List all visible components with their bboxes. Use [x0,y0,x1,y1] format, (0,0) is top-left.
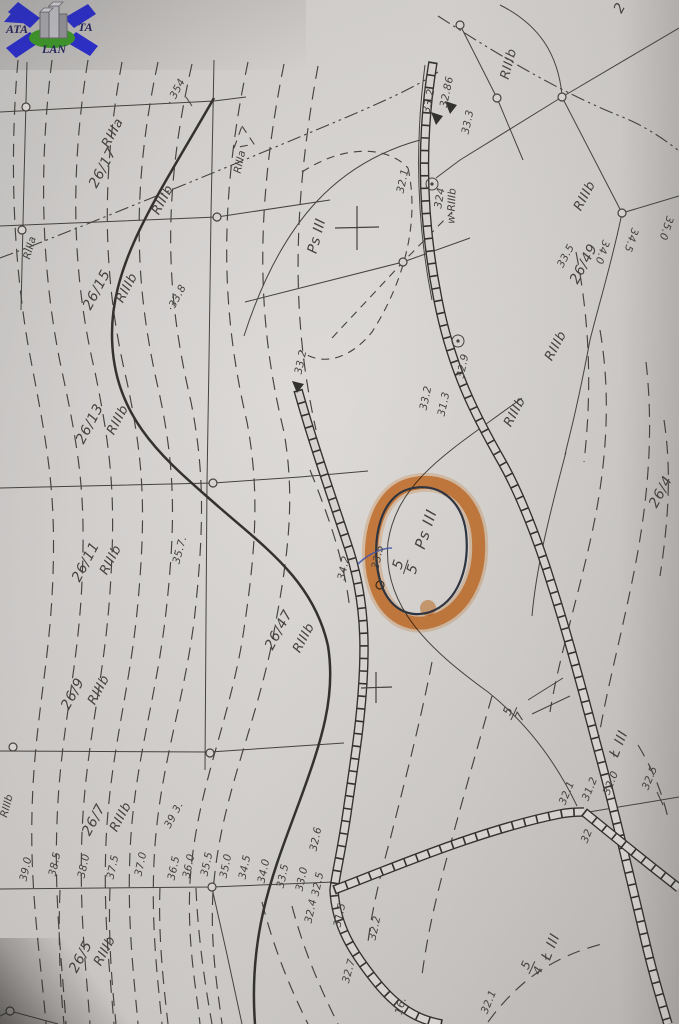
paper-edge-shade-top [0,0,306,70]
map-photo: · 35426/17RIIIaRIIIbRIIIaRIIIa26/15RIIIb… [0,0,679,1024]
paper-edge-shade [619,0,679,1024]
contour-lines-bold [112,98,330,1024]
map-linework [0,0,679,1024]
contour-lines-dashed [13,60,668,1024]
paper-corner-shadow [0,938,160,1024]
highlight-ring [358,482,479,623]
